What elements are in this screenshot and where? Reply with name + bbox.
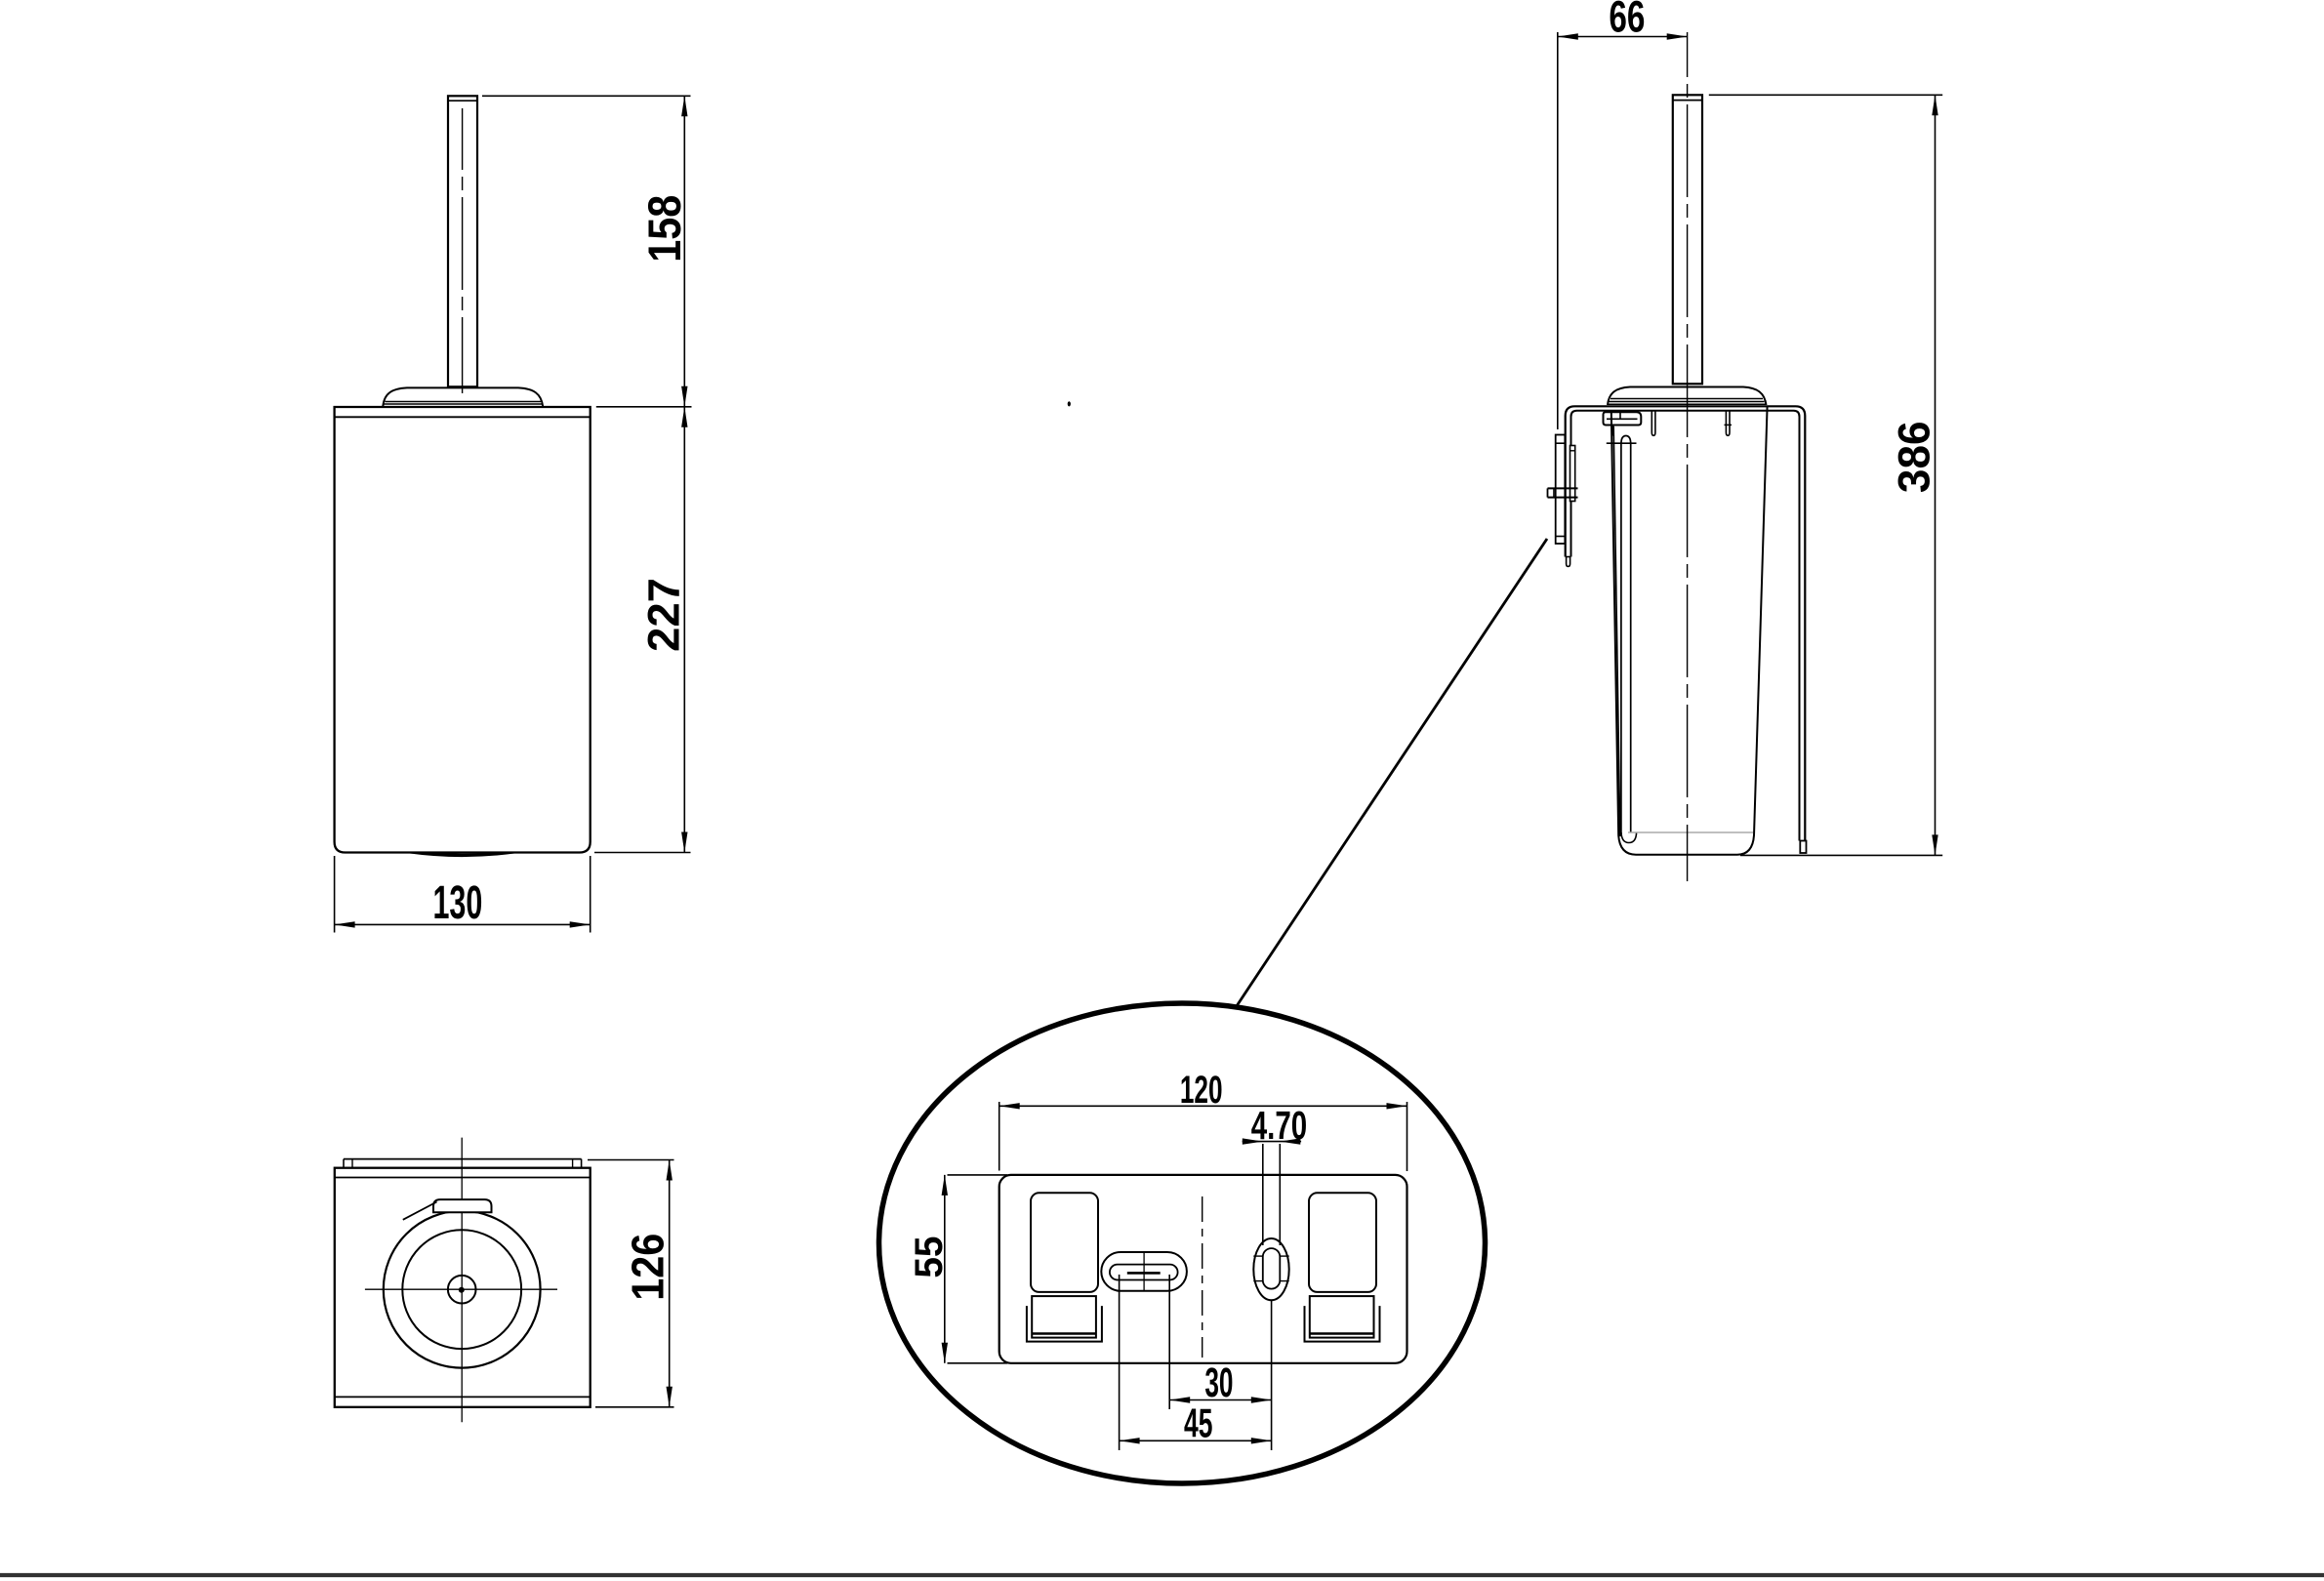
svg-text:386: 386 — [1891, 422, 1938, 494]
svg-text:55: 55 — [908, 1236, 952, 1278]
svg-text:126: 126 — [623, 1234, 673, 1301]
svg-text:45: 45 — [1184, 1400, 1212, 1446]
svg-text:4.70: 4.70 — [1251, 1103, 1307, 1148]
svg-text:130: 130 — [432, 876, 482, 929]
svg-text:227: 227 — [639, 578, 689, 652]
svg-text:158: 158 — [640, 195, 691, 263]
svg-text:30: 30 — [1204, 1358, 1233, 1405]
svg-text:120: 120 — [1180, 1069, 1223, 1113]
svg-text:66: 66 — [1609, 0, 1645, 42]
